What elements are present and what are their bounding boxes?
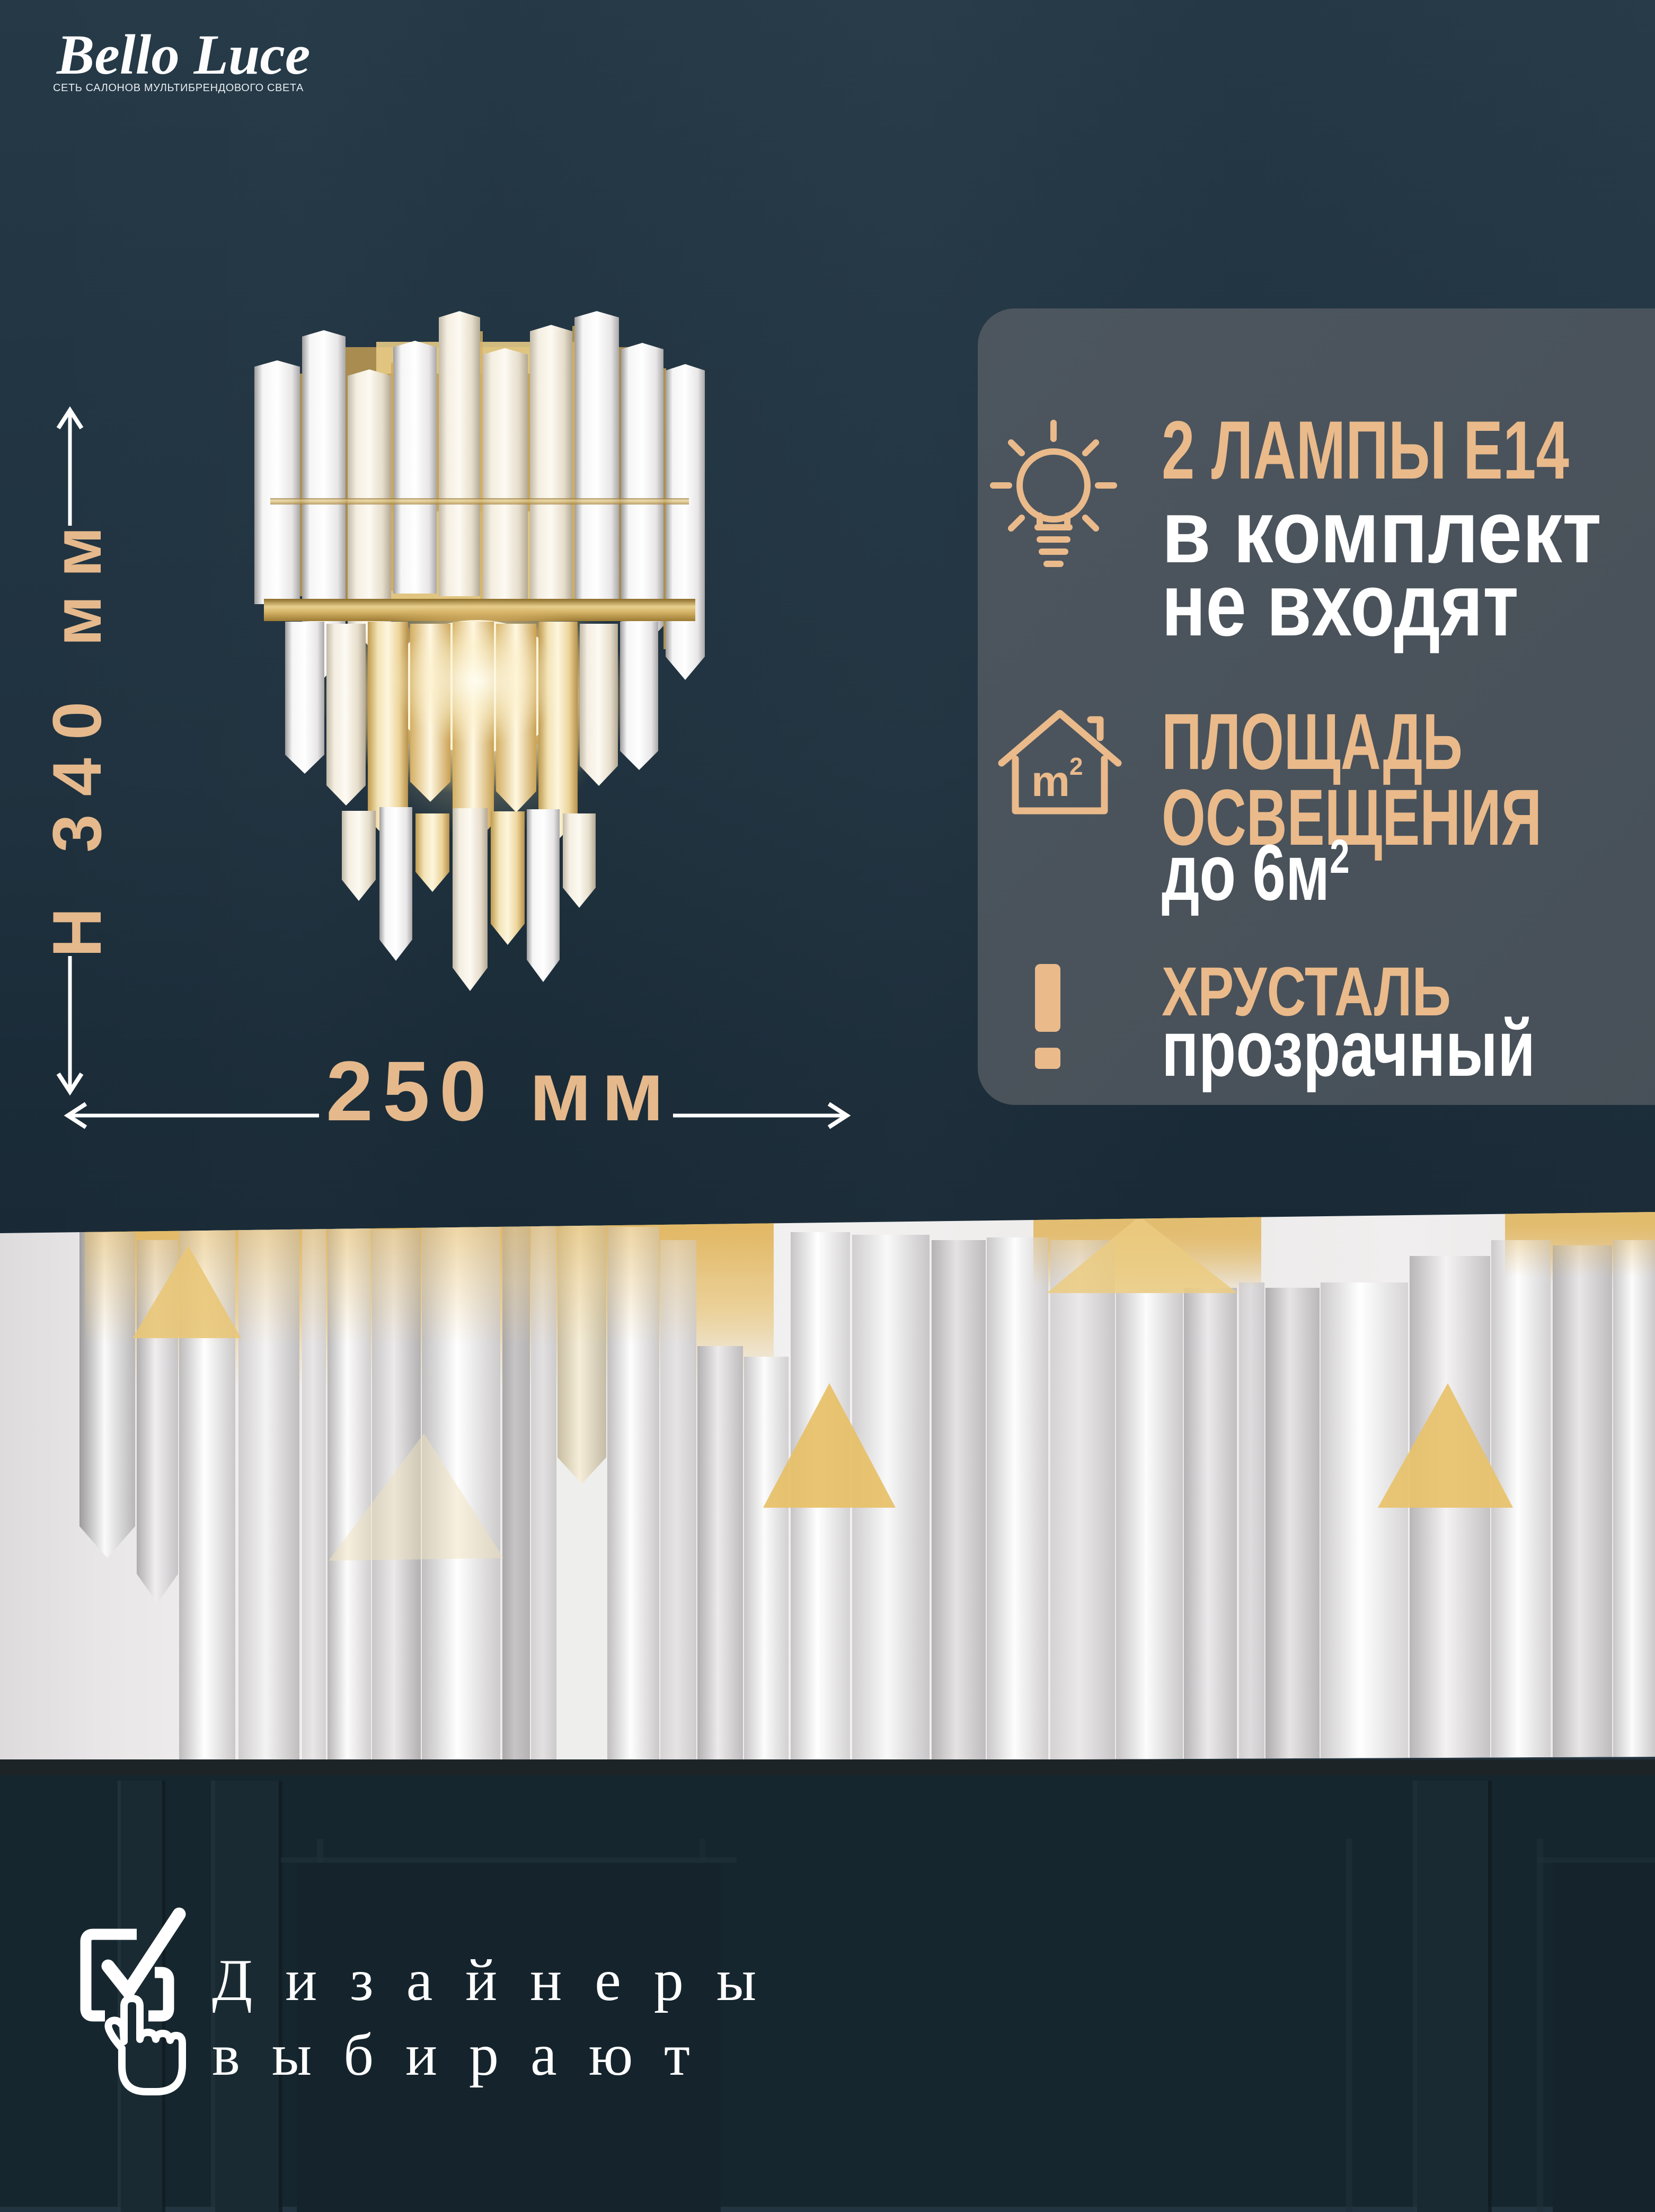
svg-text:2: 2	[1069, 753, 1083, 780]
svg-text:m: m	[1031, 757, 1070, 806]
